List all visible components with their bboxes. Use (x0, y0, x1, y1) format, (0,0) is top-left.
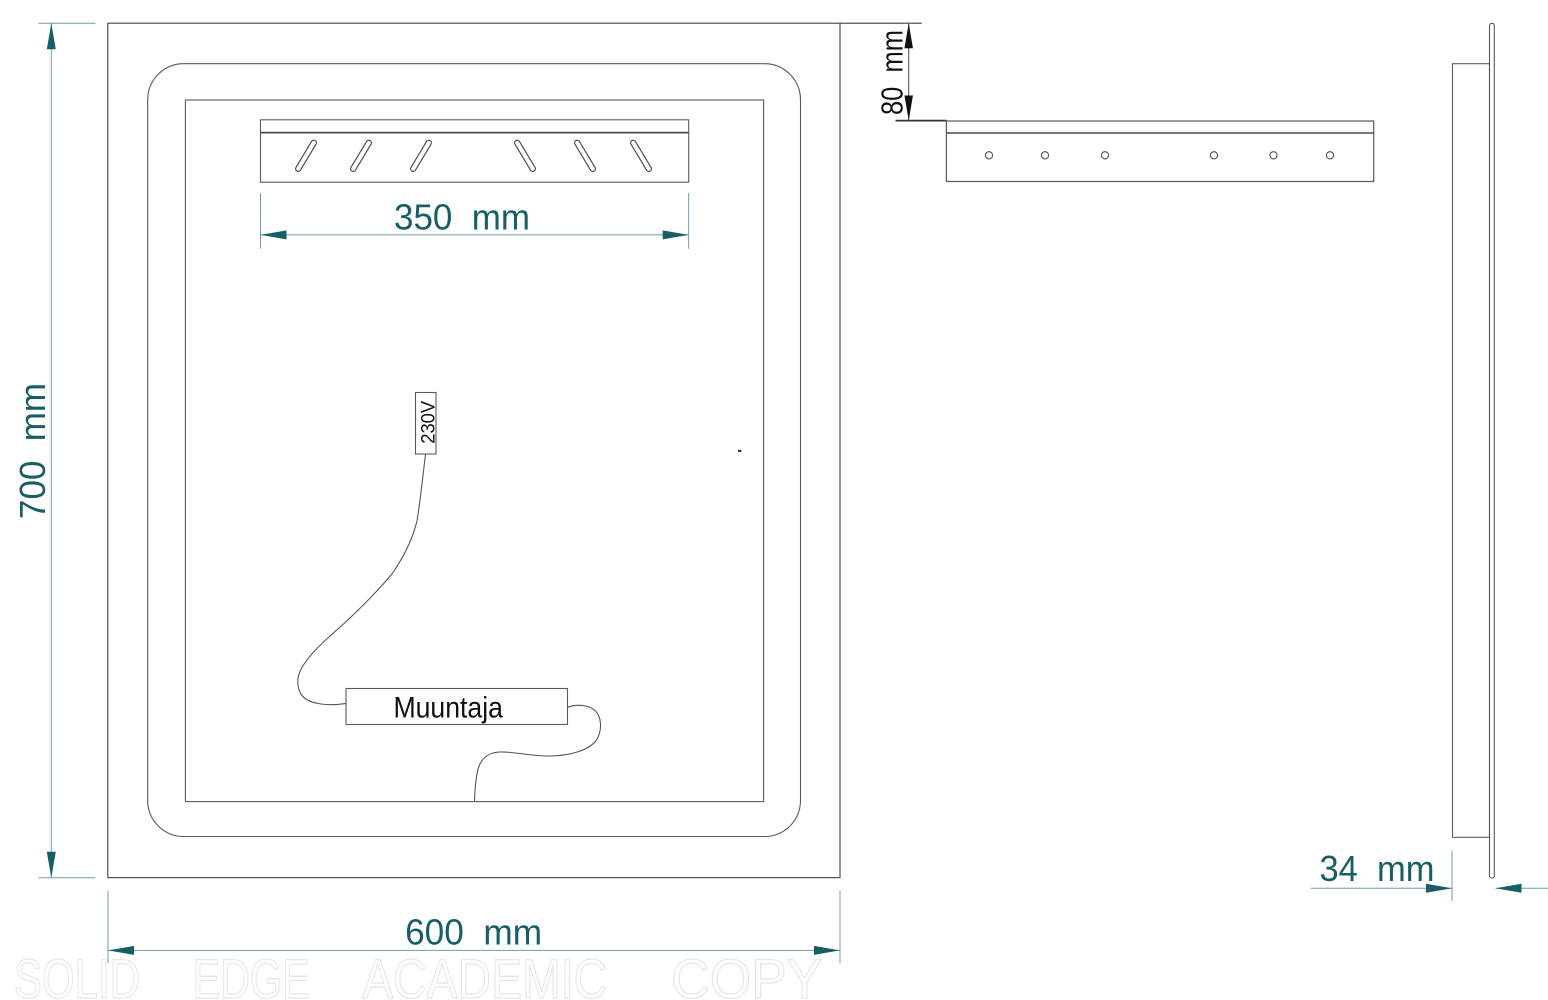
svg-text:SOLID: SOLID (14, 948, 140, 1000)
svg-text:Muuntaja: Muuntaja (393, 692, 503, 725)
svg-text:ACADEMIC: ACADEMIC (362, 948, 607, 1000)
svg-text:700 mm: 700 mm (12, 383, 53, 519)
svg-text:230V: 230V (419, 400, 440, 443)
svg-text:EDGE: EDGE (193, 948, 310, 1000)
svg-text:350 mm: 350 mm (394, 197, 530, 238)
svg-text:COPY: COPY (671, 948, 822, 1000)
svg-text:34 mm: 34 mm (1320, 848, 1435, 889)
svg-text:80 mm: 80 mm (874, 30, 909, 115)
svg-text:600 mm: 600 mm (405, 912, 542, 953)
